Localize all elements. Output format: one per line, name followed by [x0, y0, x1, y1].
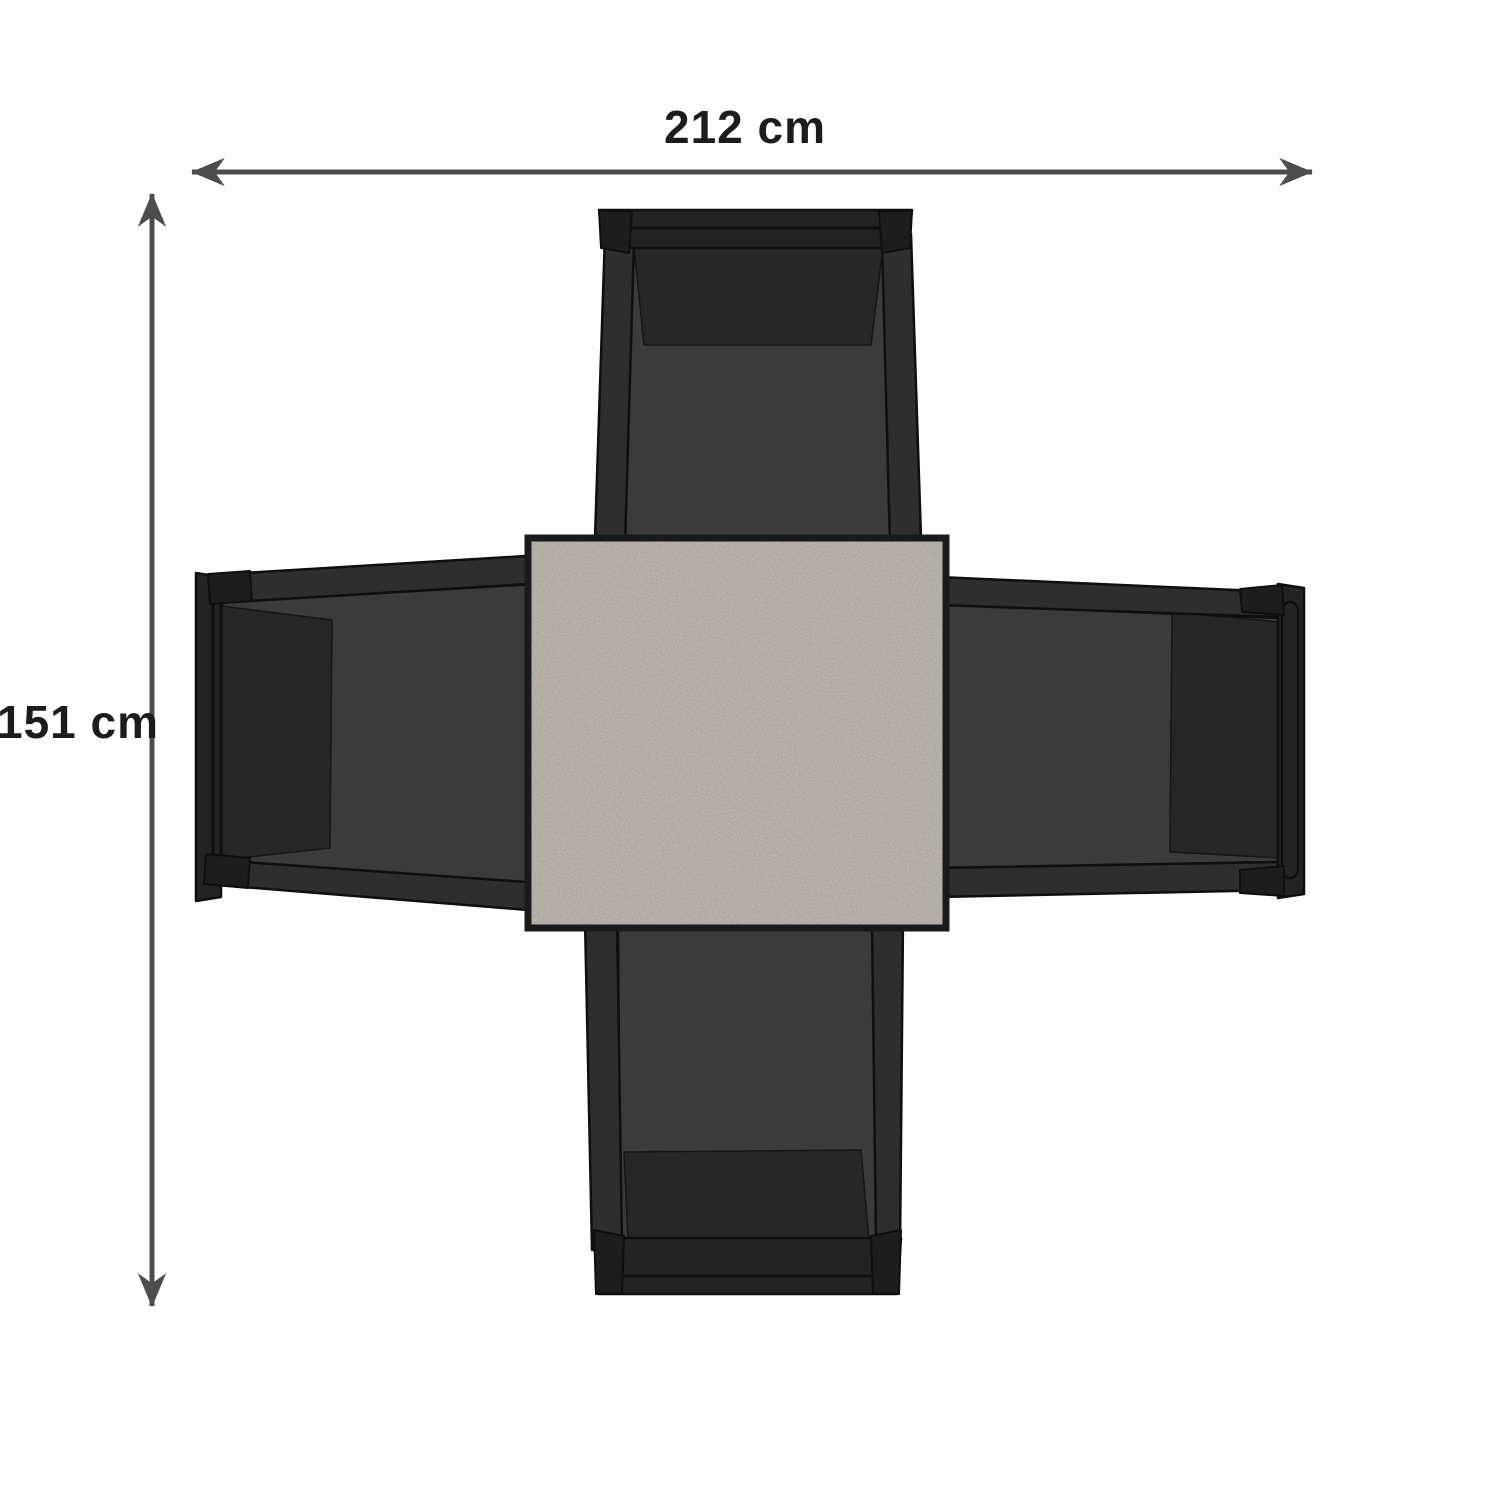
- table-texture-dark: [528, 538, 946, 928]
- chair-top-corner-right: [879, 210, 912, 253]
- chair-left: [196, 556, 536, 910]
- chair-left-corner-top: [208, 571, 252, 604]
- chair-right-corner-bottom: [1240, 866, 1284, 896]
- chair-bottom-back-cap: [594, 1238, 901, 1294]
- width-dimension-label: 212 cm: [664, 101, 826, 153]
- chair-right-armrest-bottom: [938, 862, 1281, 897]
- product-dimension-diagram: 212 cm 151 cm: [0, 0, 1500, 1500]
- chair-top-back-cushion: [634, 247, 883, 345]
- chair-left-back-cap: [196, 573, 221, 901]
- chair-right: [938, 577, 1304, 898]
- chair-top-armrest-right: [882, 234, 921, 546]
- width-dimension: 212 cm: [192, 101, 1312, 172]
- chair-right-corner-top: [1240, 585, 1284, 615]
- chair-bottom-corner-left: [594, 1230, 624, 1294]
- chair-right-back-cushion: [1170, 612, 1280, 858]
- chair-bottom-armrest-left: [585, 920, 622, 1250]
- chair-left-corner-bottom: [204, 854, 250, 888]
- chair-bottom: [585, 920, 903, 1294]
- chair-bottom-corner-right: [871, 1230, 901, 1294]
- chair-bottom-back-cushion: [624, 1150, 869, 1240]
- chair-left-back-cushion: [222, 606, 332, 860]
- height-dimension: 151 cm: [0, 194, 159, 1306]
- chair-bottom-armrest-right: [872, 920, 903, 1250]
- height-dimension-label: 151 cm: [0, 696, 159, 748]
- table-top: [528, 538, 946, 928]
- diagram-canvas: 212 cm 151 cm: [0, 0, 1500, 1500]
- chair-top-corner-left: [599, 210, 632, 253]
- chair-top: [595, 210, 921, 546]
